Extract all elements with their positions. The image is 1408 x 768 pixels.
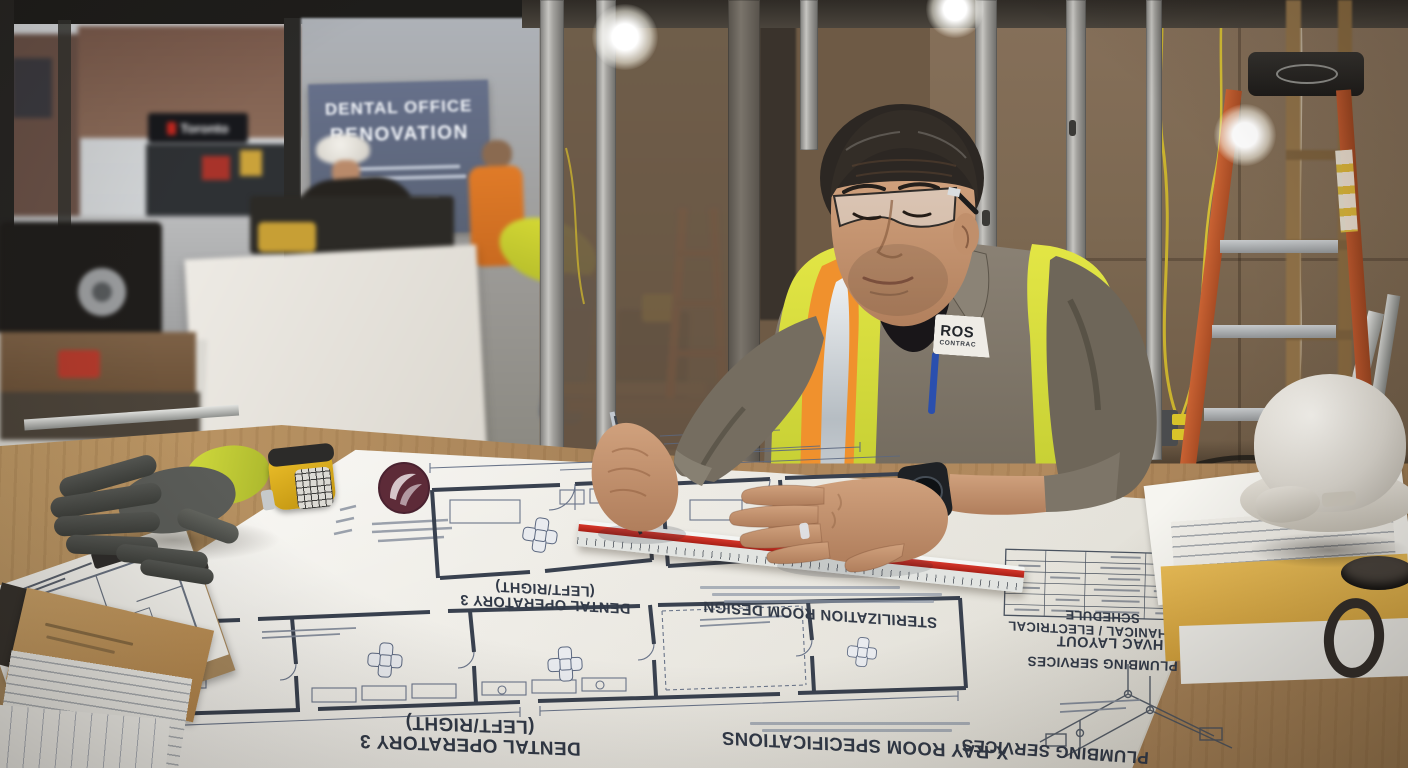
coffee-mug <box>1344 572 1408 708</box>
construction-site-photo: Toronto DENTAL OFFICE RENOVATION <box>0 0 1408 768</box>
coffee-mug-rim <box>1341 556 1408 590</box>
hard-hat-notch <box>1322 491 1357 507</box>
right-forearm <box>948 474 1046 515</box>
left-sleeve <box>674 316 824 482</box>
left-hand <box>592 423 679 532</box>
